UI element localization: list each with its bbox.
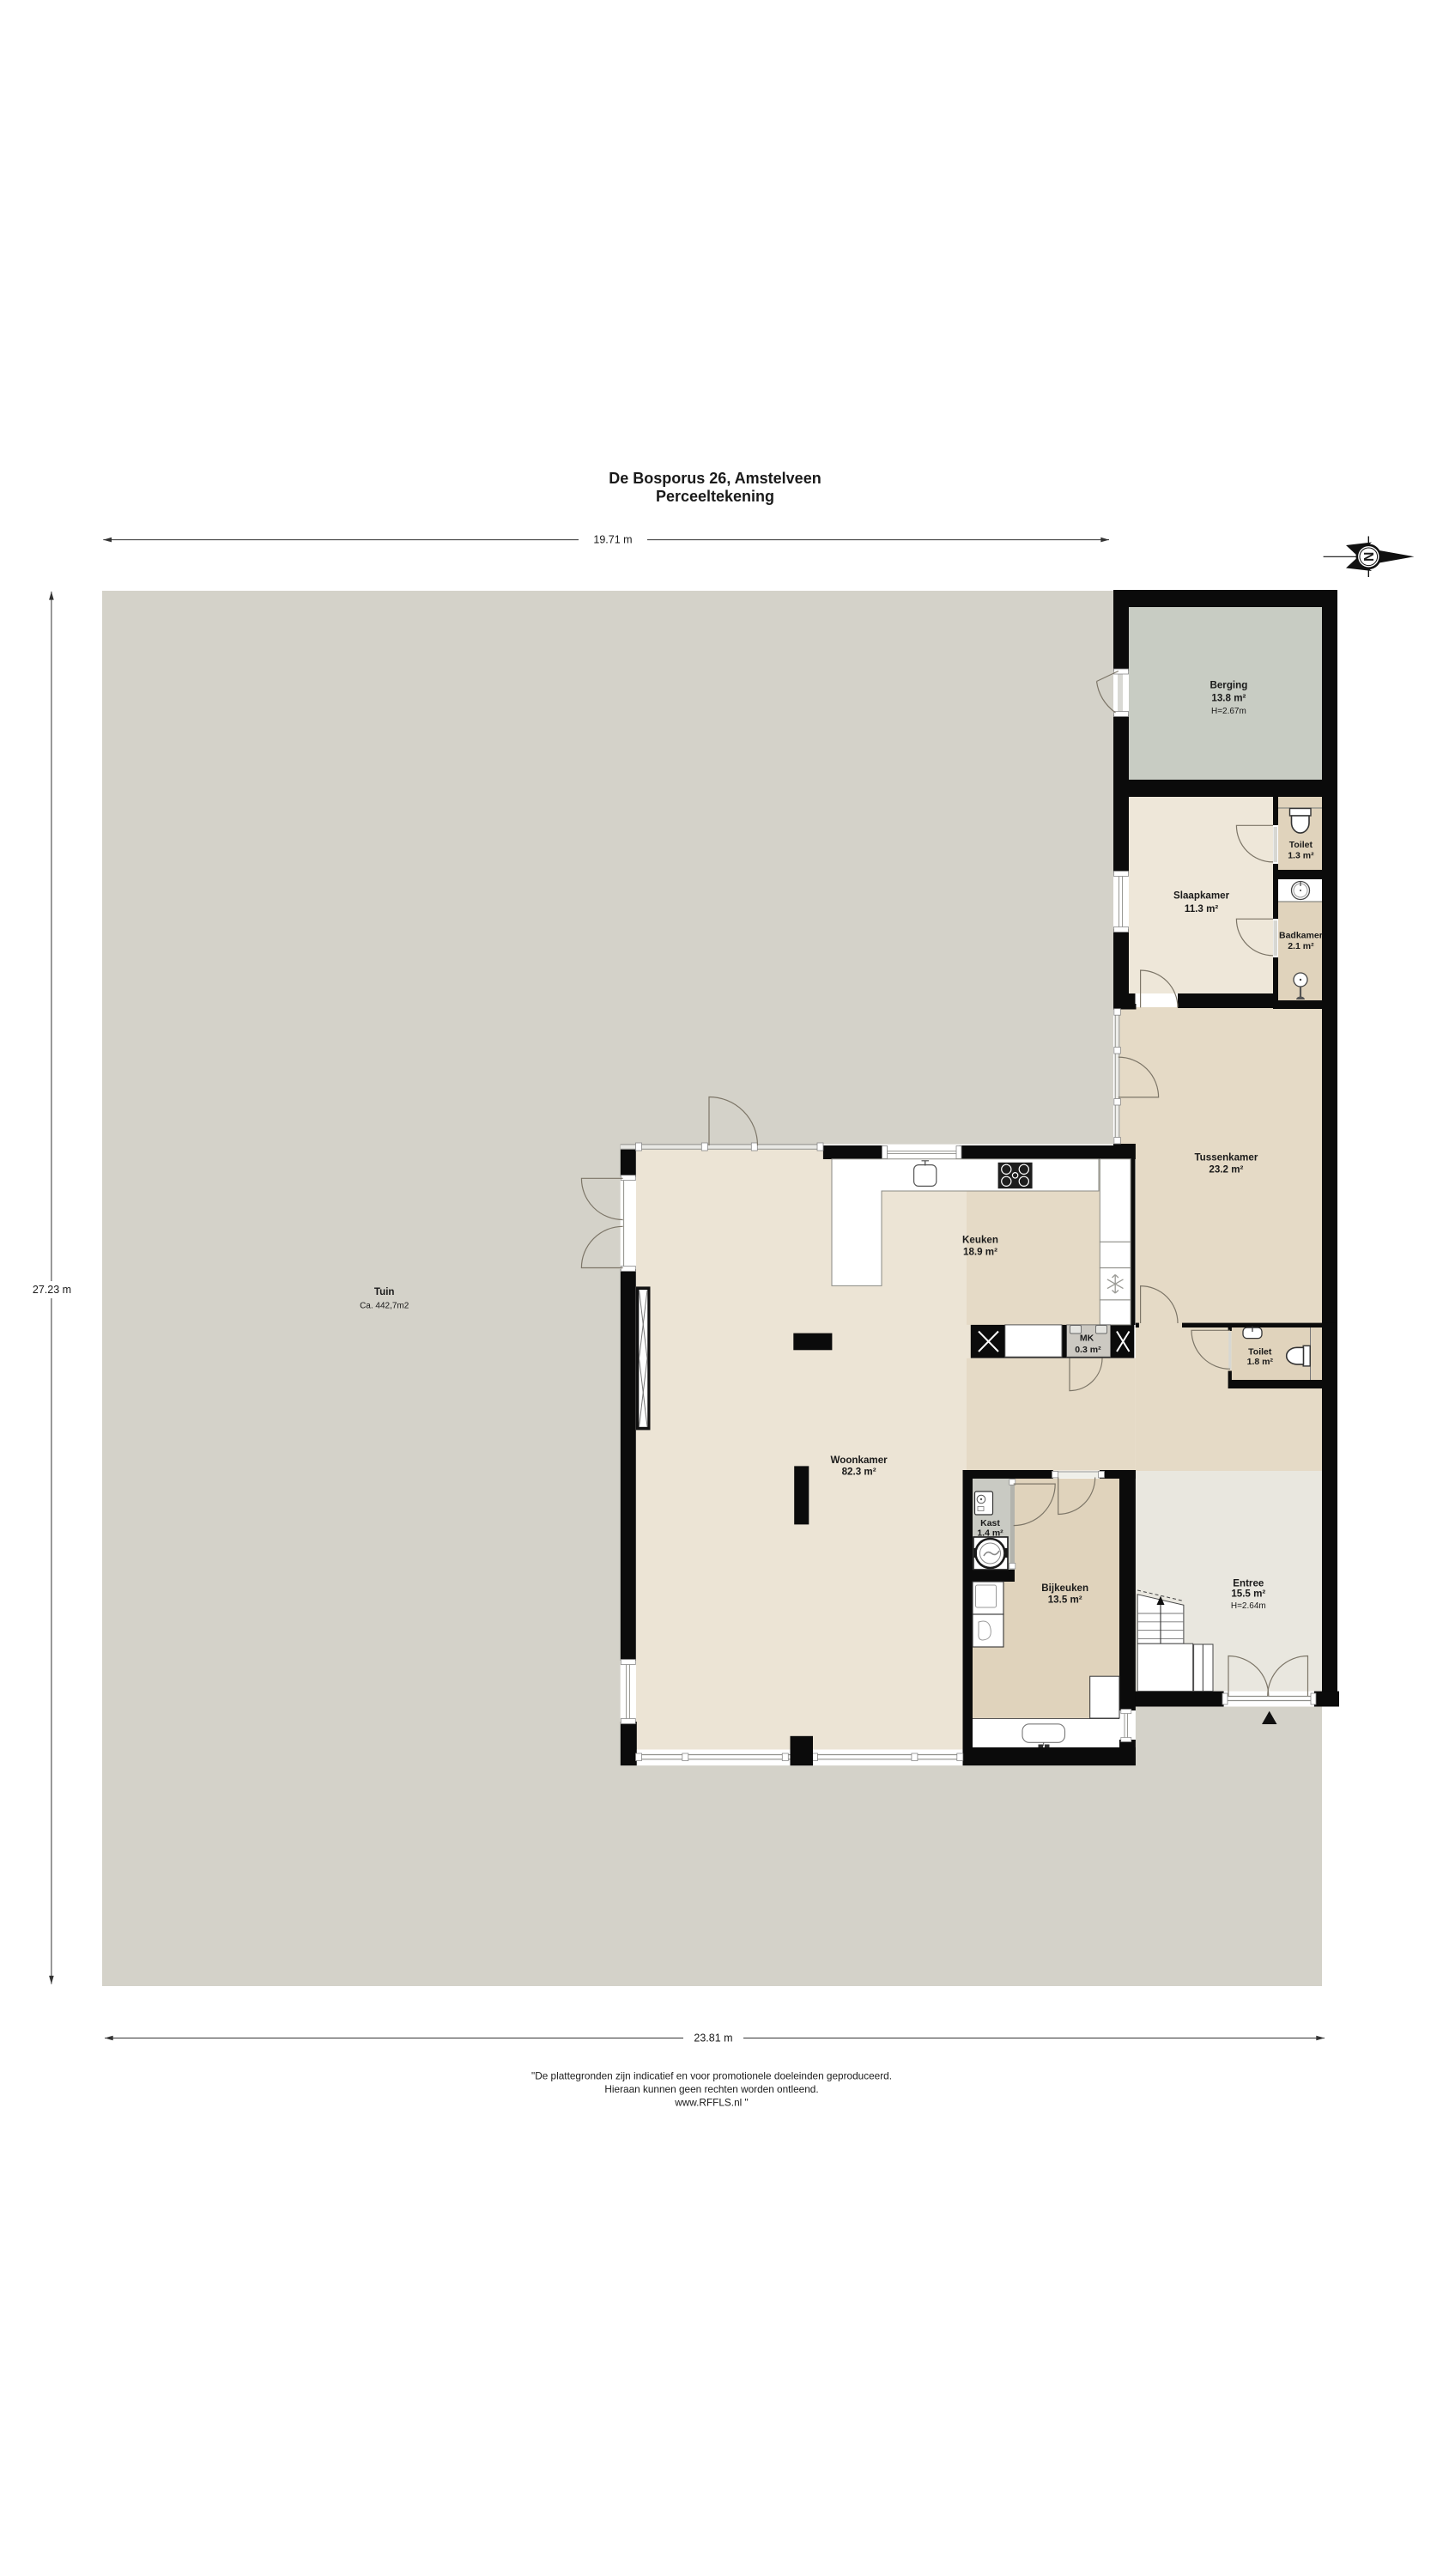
svg-text:Tussenkamer: Tussenkamer xyxy=(1194,1152,1258,1163)
svg-text:1.3 m²: 1.3 m² xyxy=(1288,851,1314,861)
svg-text:MK: MK xyxy=(1080,1334,1094,1344)
svg-text:Berging: Berging xyxy=(1210,680,1247,691)
svg-text:13.8 m²: 13.8 m² xyxy=(1211,693,1246,704)
svg-text:Slaapkamer: Slaapkamer xyxy=(1173,890,1230,902)
svg-text:www.RFFLS.nl ": www.RFFLS.nl " xyxy=(674,2097,748,2109)
svg-text:Toilet: Toilet xyxy=(1289,840,1313,850)
svg-text:13.5 m²: 13.5 m² xyxy=(1048,1595,1082,1606)
svg-text:Toilet: Toilet xyxy=(1248,1347,1272,1358)
svg-text:2.1 m²: 2.1 m² xyxy=(1288,941,1314,951)
svg-text:Perceeltekening: Perceeltekening xyxy=(656,488,774,505)
svg-text:15.5 m²: 15.5 m² xyxy=(1231,1589,1265,1600)
svg-text:Ca. 442,7m2: Ca. 442,7m2 xyxy=(360,1302,409,1311)
svg-text:19.71 m: 19.71 m xyxy=(593,534,632,546)
svg-text:Kast: Kast xyxy=(980,1518,1000,1528)
svg-text:N: N xyxy=(1362,552,1377,562)
svg-text:De Bosporus 26, Amstelveen: De Bosporus 26, Amstelveen xyxy=(609,470,821,487)
svg-text:23.81 m: 23.81 m xyxy=(694,2032,732,2044)
svg-text:Badkamer: Badkamer xyxy=(1279,931,1323,941)
svg-text:1.4 m²: 1.4 m² xyxy=(977,1528,1003,1539)
svg-text:H=2.64m: H=2.64m xyxy=(1231,1601,1266,1611)
svg-text:Bijkeuken: Bijkeuken xyxy=(1041,1583,1088,1594)
svg-text:82.3 m²: 82.3 m² xyxy=(842,1467,876,1478)
svg-text:18.9 m²: 18.9 m² xyxy=(963,1247,997,1258)
svg-text:11.3 m²: 11.3 m² xyxy=(1185,903,1218,914)
svg-text:27.23 m: 27.23 m xyxy=(33,1284,71,1296)
svg-text:H=2.67m: H=2.67m xyxy=(1211,707,1246,716)
svg-text:Keuken: Keuken xyxy=(962,1235,998,1246)
svg-text:Woonkamer: Woonkamer xyxy=(831,1455,888,1466)
svg-text:"De plattegronden zijn indicat: "De plattegronden zijn indicatief en voo… xyxy=(531,2070,892,2082)
svg-text:Hieraan kunnen geen rechten wo: Hieraan kunnen geen rechten worden ontle… xyxy=(604,2083,818,2095)
svg-text:0.3 m²: 0.3 m² xyxy=(1075,1345,1101,1355)
svg-text:Tuin: Tuin xyxy=(374,1286,395,1297)
svg-text:23.2 m²: 23.2 m² xyxy=(1209,1164,1243,1176)
svg-text:1.8 m²: 1.8 m² xyxy=(1247,1357,1274,1367)
